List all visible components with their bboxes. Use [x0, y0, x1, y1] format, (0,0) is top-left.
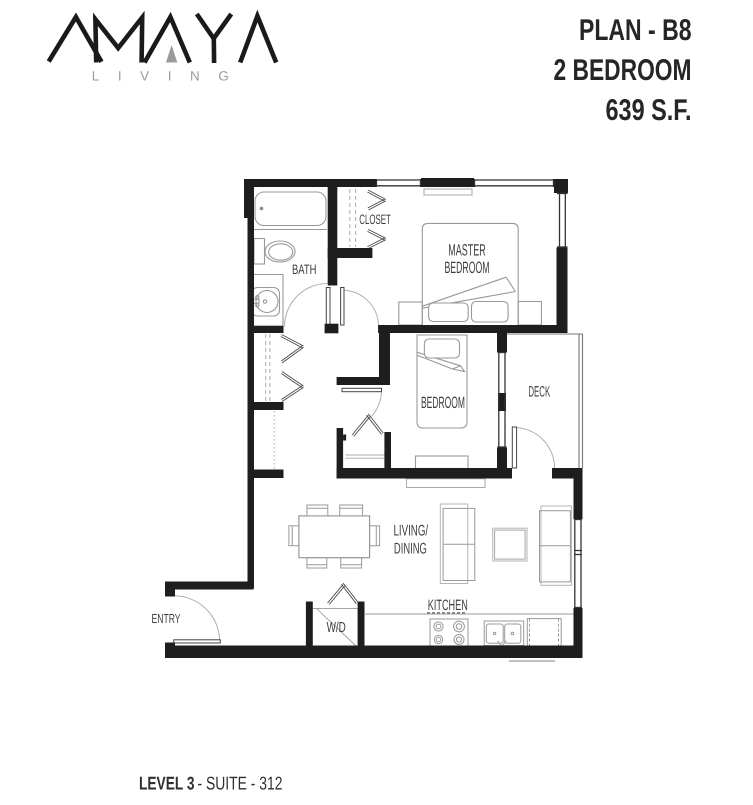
svg-text:BATH: BATH [292, 262, 317, 277]
svg-text:PLAN - B8: PLAN - B8 [579, 14, 692, 47]
svg-text:DINING: DINING [394, 540, 427, 557]
svg-text:639 S.F.: 639 S.F. [606, 94, 692, 127]
svg-text:LEVEL 3: LEVEL 3 [139, 773, 195, 794]
svg-text:CLOSET: CLOSET [359, 212, 391, 227]
svg-text:BEDROOM: BEDROOM [445, 259, 490, 277]
svg-text:MASTER: MASTER [448, 242, 486, 260]
svg-text:ENTRY: ENTRY [152, 611, 181, 626]
svg-text:W/D: W/D [327, 620, 346, 636]
svg-text:LIVING/: LIVING/ [394, 523, 429, 540]
svg-text:DECK: DECK [528, 384, 550, 401]
svg-text:KITCHEN: KITCHEN [428, 597, 468, 614]
svg-text:- SUITE - 312: - SUITE - 312 [198, 773, 283, 794]
svg-text:2 BEDROOM: 2 BEDROOM [554, 54, 692, 87]
svg-text:BEDROOM: BEDROOM [421, 394, 465, 412]
